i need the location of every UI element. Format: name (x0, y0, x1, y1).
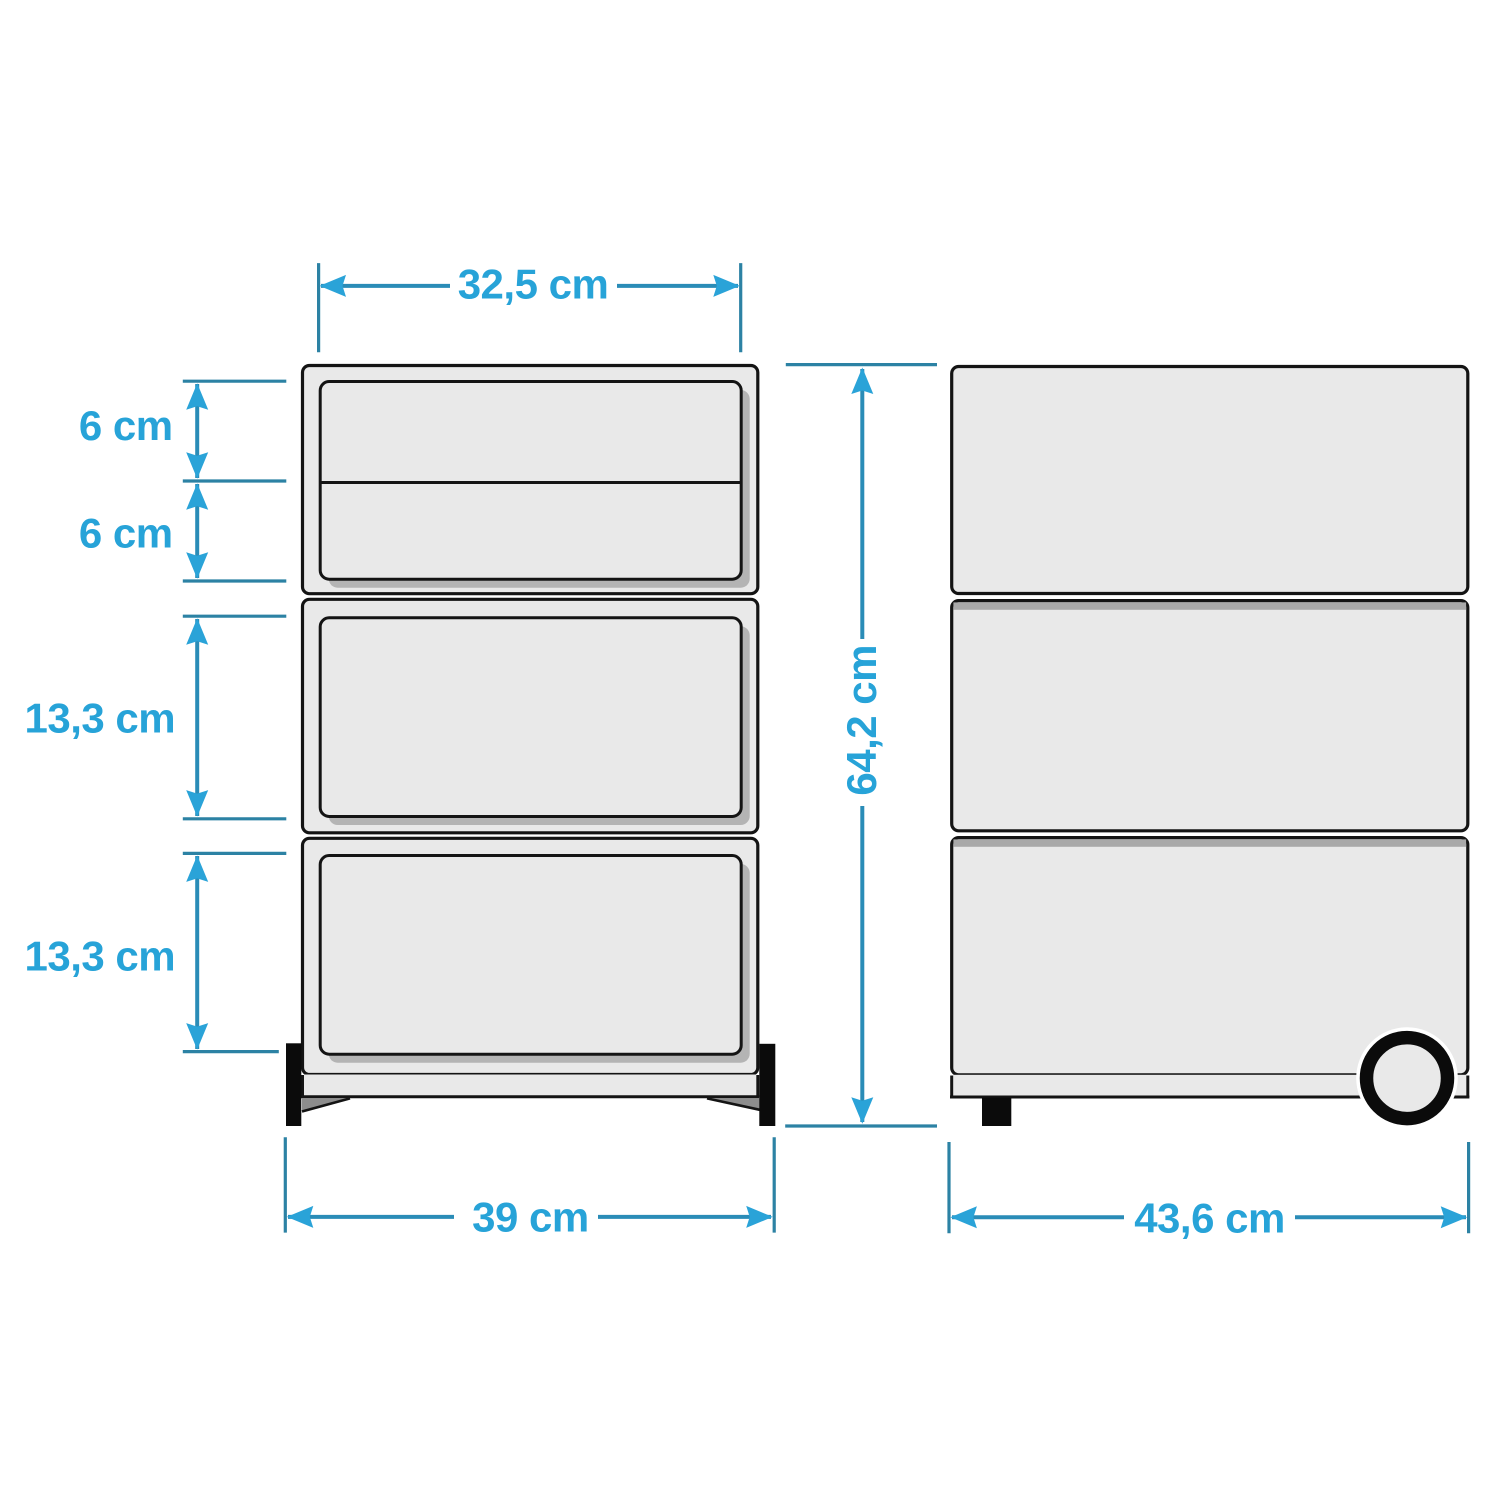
svg-text:32,5 cm: 32,5 cm (458, 261, 609, 308)
svg-text:6 cm: 6 cm (79, 402, 173, 449)
svg-text:43,6 cm: 43,6 cm (1134, 1194, 1285, 1241)
svg-text:13,3 cm: 13,3 cm (24, 695, 175, 742)
svg-text:6 cm: 6 cm (79, 509, 173, 556)
svg-text:64,2 cm: 64,2 cm (838, 645, 885, 796)
svg-text:39 cm: 39 cm (472, 1194, 589, 1241)
svg-text:13,3 cm: 13,3 cm (24, 933, 175, 980)
